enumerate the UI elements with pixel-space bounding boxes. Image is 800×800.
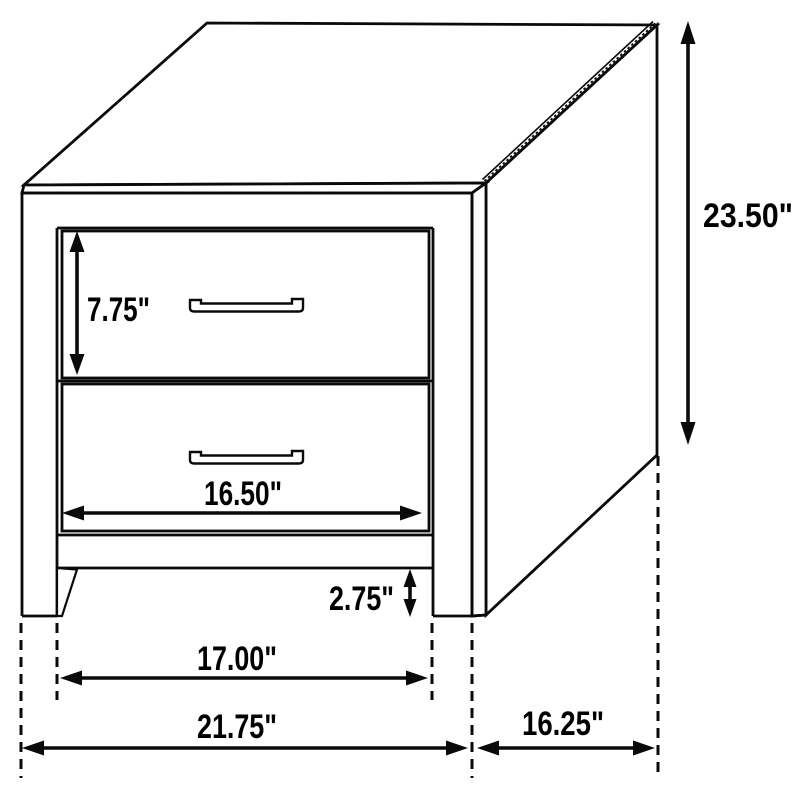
dimension-label-drawer-height: 7.75" (87, 291, 150, 329)
dimension-label-overall-width: 21.75" (197, 708, 277, 746)
furniture-dimension-diagram: 7.75" 23.50" 16.50" 2.75" 17 (0, 0, 800, 800)
top-panel-front-edge (22, 183, 486, 193)
front-corner-edge (472, 183, 486, 616)
dimension-label-leg-height: 2.75" (329, 580, 394, 618)
dimension-label-leg-span-width: 17.00" (197, 640, 277, 678)
dimension-label-overall-height: 23.50" (703, 197, 793, 235)
dimension-label-overall-depth: 16.25" (522, 705, 604, 743)
bottom-front-right-connector (472, 615, 486, 616)
dimension-label-drawer-opening-width: 16.50" (204, 475, 282, 513)
nightstand-diagram-canvas: 7.75" 23.50" 16.50" 2.75" 17 (0, 0, 800, 800)
